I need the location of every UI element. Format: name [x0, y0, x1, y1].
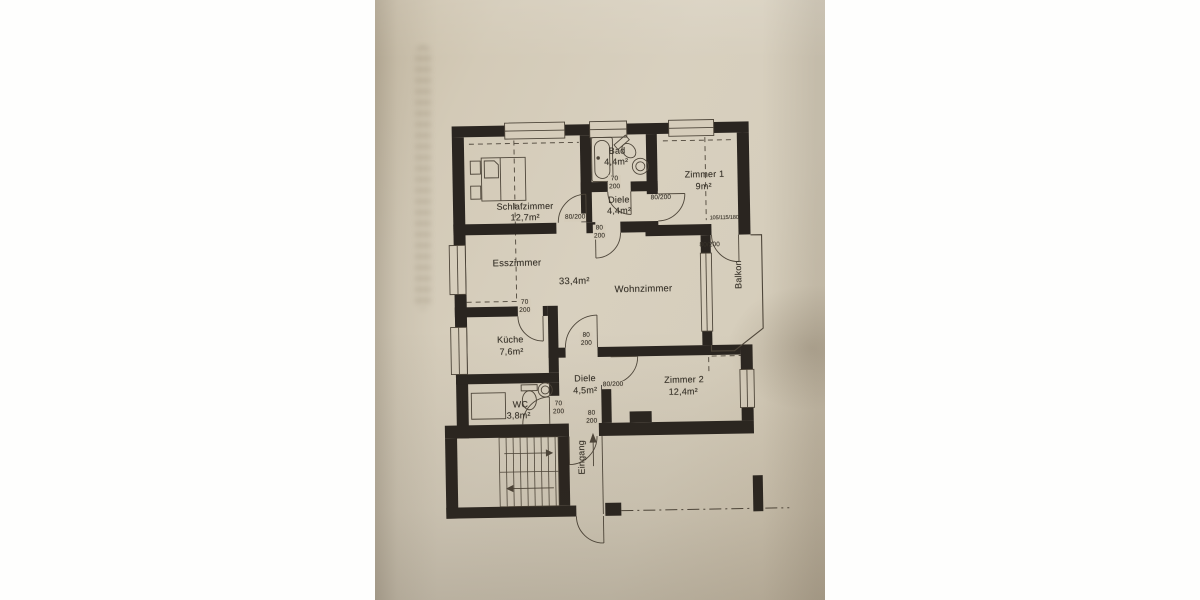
label-diele-og-name: Diele [608, 194, 630, 204]
label-wc-name: WC [513, 399, 529, 409]
walls [440, 121, 764, 518]
window-kueche [451, 327, 468, 374]
label-diele-eg-name: Diele [574, 373, 596, 383]
window-zimmer1 [669, 119, 714, 136]
label-zimmer2-area: 12,4m² [669, 386, 698, 397]
label-door-wohnungstuer: 80 200 [585, 410, 598, 425]
label-zimmer2-name: Zimmer 2 [664, 374, 704, 385]
label-zimmer1-name: Zimmer 1 [685, 169, 725, 180]
label-esszimmer-name: Esszimmer [493, 258, 542, 270]
window-balkon-tuer [700, 253, 712, 331]
label-bad-area: 4,4m² [604, 156, 628, 166]
label-door-balkon: 80/200 [699, 241, 720, 249]
entrance-arrow-icon [590, 434, 597, 466]
label-kueche-name: Küche [497, 334, 524, 344]
label-schlafzimmer-area: 12,7m² [511, 212, 540, 223]
label-door-wohnzimmer-sued: 80 200 [580, 332, 593, 347]
label-door-zimmer2: 80/200 [602, 381, 625, 389]
label-bad-name: Bad [609, 146, 626, 156]
window-bad [590, 121, 627, 138]
washbasin-bad-icon [632, 158, 648, 174]
label-wc-area: 3,8m² [507, 410, 531, 420]
label-door-bad: 70 200 [608, 175, 621, 190]
label-door-schlafzimmer: 80/200 [564, 213, 587, 221]
label-zimmer1-area: 9m² [696, 181, 712, 191]
label-balkon-name: Balkon [733, 260, 743, 289]
label-door-wc: 70 200 [552, 400, 565, 415]
window-esszimmer [449, 245, 466, 294]
label-kueche-area: 7,6m² [499, 346, 523, 356]
floor-plan-photo: Schlafzimmer 12,7m² Bad 4,4m² Diele 4,4m… [0, 0, 1200, 600]
stairs-icon [499, 437, 559, 507]
bed-icon [470, 157, 526, 201]
door-zimmer2 [611, 356, 638, 383]
washing-machine-icon [471, 393, 505, 420]
label-schlafzimmer-name: Schlafzimmer [496, 201, 553, 212]
window-schlafzimmer [505, 122, 565, 139]
label-diele-og-area: 4,4m² [607, 205, 631, 215]
label-wohnbereich-area: 33,4m² [559, 276, 590, 288]
plan-drawing [0, 0, 1200, 600]
label-zimmer1-fenster: 105/115/180 [710, 215, 739, 223]
label-door-kueche: 70 200 [518, 299, 531, 314]
label-diele-eg-area: 4,5m² [573, 385, 597, 395]
label-eingang-name: Eingang [576, 440, 587, 475]
label-door-diele-og: 80 200 [593, 224, 606, 239]
label-door-zimmer1: 80/200 [651, 194, 672, 202]
door-haustuer [576, 516, 603, 543]
label-wohnzimmer-name: Wohnzimmer [614, 283, 672, 295]
window-zimmer2 [740, 369, 755, 407]
floor-plan: Schlafzimmer 12,7m² Bad 4,4m² Diele 4,4m… [0, 0, 1200, 600]
